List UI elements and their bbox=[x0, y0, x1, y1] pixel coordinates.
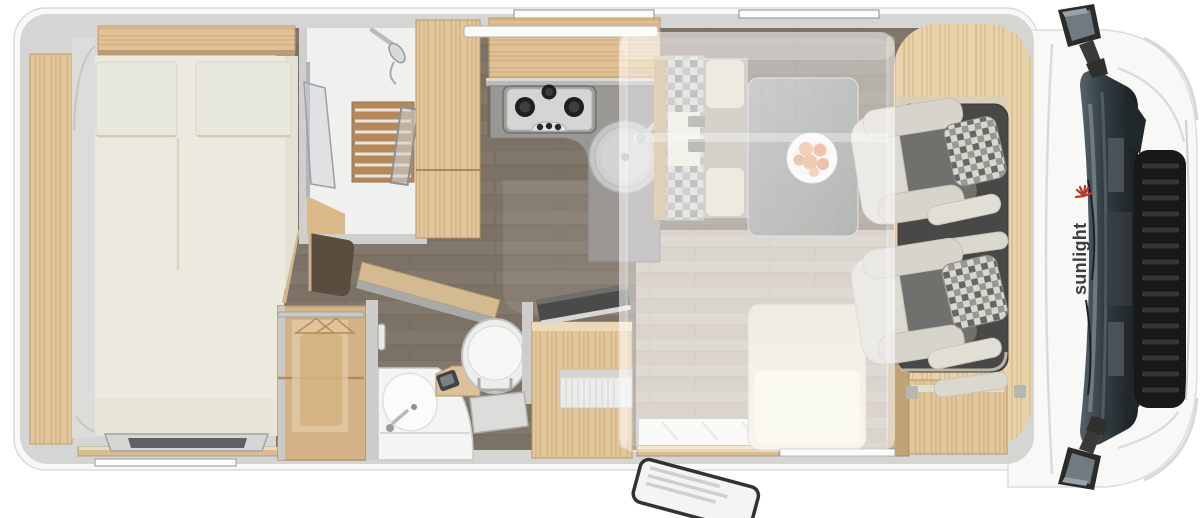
svg-text:sunlight: sunlight bbox=[1070, 223, 1090, 295]
